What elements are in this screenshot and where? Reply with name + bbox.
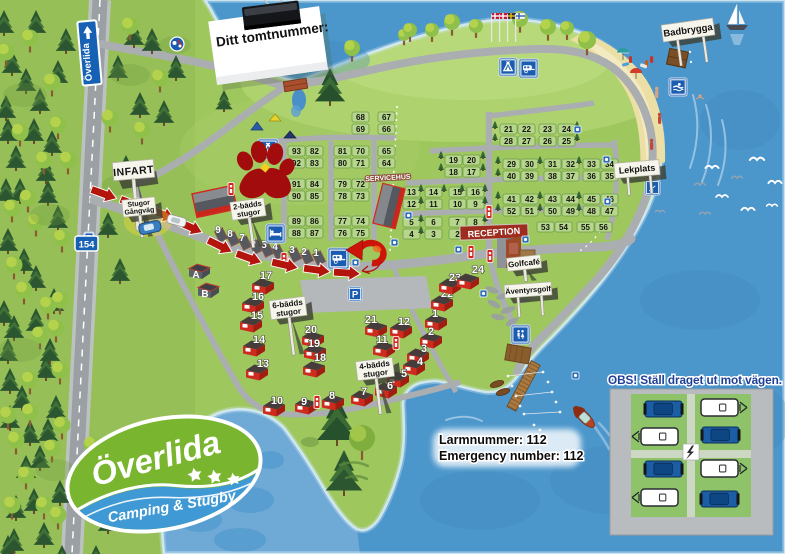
svg-text:31: 31	[548, 160, 557, 169]
svg-text:40: 40	[507, 172, 516, 181]
svg-text:52: 52	[507, 207, 516, 216]
svg-text:P: P	[352, 289, 359, 300]
svg-text:10: 10	[453, 200, 462, 209]
svg-text:19: 19	[449, 156, 458, 165]
svg-text:24: 24	[472, 264, 485, 276]
svg-text:53: 53	[541, 223, 550, 232]
svg-text:73: 73	[356, 192, 365, 201]
svg-text:7: 7	[239, 233, 245, 244]
svg-text:10: 10	[271, 395, 283, 407]
svg-text:26: 26	[543, 137, 552, 146]
svg-text:12: 12	[407, 200, 416, 209]
svg-text:A: A	[192, 270, 199, 281]
svg-text:36: 36	[587, 172, 596, 181]
svg-text:29: 29	[507, 160, 516, 169]
svg-text:14: 14	[253, 334, 266, 346]
svg-text:154: 154	[79, 240, 96, 251]
svg-text:39: 39	[525, 172, 534, 181]
svg-text:21: 21	[365, 314, 377, 326]
svg-text:18: 18	[314, 352, 326, 364]
svg-text:43: 43	[548, 195, 557, 204]
svg-text:35: 35	[605, 172, 614, 181]
svg-text:51: 51	[525, 207, 534, 216]
svg-text:11: 11	[376, 334, 388, 346]
svg-text:82: 82	[310, 147, 319, 156]
svg-text:3: 3	[289, 245, 295, 256]
svg-text:5: 5	[409, 218, 414, 227]
svg-text:13: 13	[257, 358, 269, 370]
svg-text:69: 69	[356, 125, 365, 134]
svg-text:37: 37	[566, 172, 575, 181]
svg-text:68: 68	[356, 113, 365, 122]
svg-text:48: 48	[587, 207, 596, 216]
svg-text:64: 64	[382, 159, 391, 168]
svg-text:85: 85	[310, 192, 319, 201]
svg-text:88: 88	[292, 229, 301, 238]
svg-text:38: 38	[548, 172, 557, 181]
svg-text:17: 17	[260, 270, 272, 282]
svg-text:30: 30	[525, 160, 534, 169]
svg-text:67: 67	[382, 113, 391, 122]
svg-text:56: 56	[599, 223, 608, 232]
svg-text:70: 70	[356, 147, 365, 156]
svg-text:4: 4	[409, 230, 414, 239]
svg-text:B: B	[201, 289, 208, 300]
svg-text:55: 55	[581, 223, 590, 232]
svg-text:25: 25	[562, 137, 571, 146]
svg-text:Larmnummer: 112: Larmnummer: 112	[439, 433, 547, 447]
svg-text:50: 50	[548, 207, 557, 216]
svg-text:41: 41	[507, 195, 516, 204]
svg-text:83: 83	[310, 159, 319, 168]
svg-text:89: 89	[292, 217, 301, 226]
svg-text:71: 71	[356, 159, 365, 168]
svg-text:5: 5	[401, 368, 407, 380]
svg-text:12: 12	[398, 316, 410, 328]
svg-text:91: 91	[292, 180, 301, 189]
svg-text:18: 18	[449, 168, 458, 177]
svg-text:54: 54	[559, 223, 568, 232]
svg-text:6: 6	[431, 218, 436, 227]
svg-text:14: 14	[429, 188, 438, 197]
svg-text:2: 2	[428, 326, 434, 338]
svg-text:21: 21	[504, 125, 513, 134]
svg-text:17: 17	[467, 168, 476, 177]
svg-text:87: 87	[310, 229, 319, 238]
svg-text:4: 4	[272, 242, 278, 253]
svg-text:16: 16	[252, 291, 264, 303]
svg-text:72: 72	[356, 180, 365, 189]
svg-text:4: 4	[417, 356, 424, 368]
svg-text:80: 80	[338, 159, 347, 168]
svg-text:23: 23	[543, 125, 552, 134]
svg-text:44: 44	[566, 195, 575, 204]
svg-text:27: 27	[522, 137, 531, 146]
svg-text:77: 77	[338, 217, 347, 226]
svg-text:9: 9	[301, 396, 307, 408]
svg-text:32: 32	[566, 160, 575, 169]
svg-text:45: 45	[587, 195, 596, 204]
svg-text:49: 49	[566, 207, 575, 216]
svg-text:OBS! Ställ draget ut mot vägen: OBS! Ställ draget ut mot vägen.	[608, 373, 782, 387]
svg-text:8: 8	[227, 229, 233, 240]
svg-text:76: 76	[338, 229, 347, 238]
svg-text:93: 93	[292, 147, 301, 156]
svg-text:74: 74	[356, 217, 365, 226]
svg-text:75: 75	[356, 229, 365, 238]
svg-text:33: 33	[587, 160, 596, 169]
svg-text:8: 8	[329, 390, 335, 402]
svg-text:9: 9	[215, 225, 221, 236]
svg-text:20: 20	[305, 324, 317, 336]
svg-text:79: 79	[338, 180, 347, 189]
svg-text:13: 13	[407, 188, 416, 197]
svg-text:66: 66	[382, 125, 391, 134]
svg-text:47: 47	[605, 207, 614, 216]
svg-text:84: 84	[310, 180, 319, 189]
svg-text:28: 28	[504, 137, 513, 146]
svg-text:65: 65	[382, 147, 391, 156]
svg-text:16: 16	[471, 188, 480, 197]
svg-text:42: 42	[525, 195, 534, 204]
svg-text:81: 81	[338, 147, 347, 156]
svg-text:24: 24	[562, 125, 571, 134]
svg-text:9: 9	[473, 200, 478, 209]
svg-text:3: 3	[431, 230, 436, 239]
svg-text:19: 19	[308, 338, 320, 350]
svg-text:22: 22	[522, 125, 531, 134]
svg-text:11: 11	[429, 200, 438, 209]
svg-text:15: 15	[251, 310, 263, 322]
svg-text:2: 2	[301, 247, 307, 258]
svg-text:78: 78	[338, 192, 347, 201]
svg-text:90: 90	[292, 192, 301, 201]
svg-text:7: 7	[361, 386, 367, 398]
svg-text:20: 20	[467, 156, 476, 165]
svg-text:Emergency number: 112: Emergency number: 112	[439, 449, 584, 463]
svg-text:3: 3	[421, 343, 427, 355]
svg-text:1: 1	[313, 248, 319, 259]
svg-text:86: 86	[310, 217, 319, 226]
